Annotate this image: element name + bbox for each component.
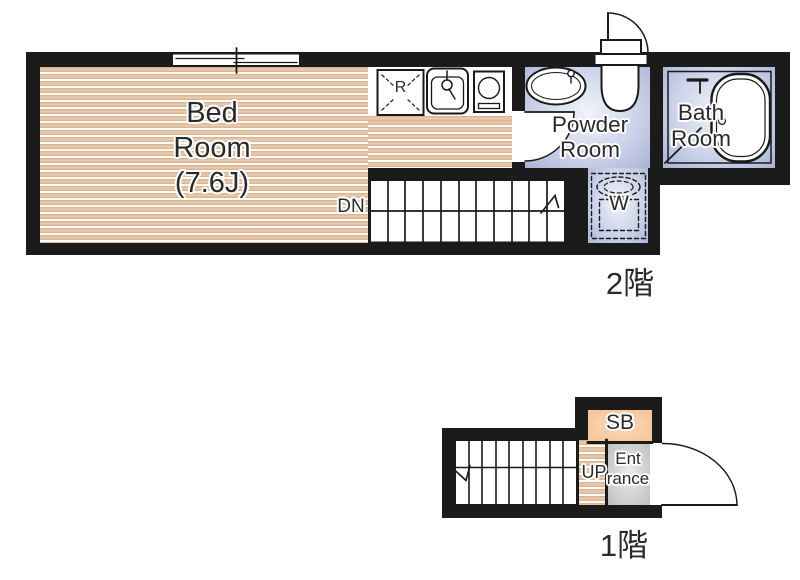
floor1-label: 1階 <box>584 520 664 565</box>
refrigerator-label: R <box>377 79 424 97</box>
bedroom-window-icon <box>172 48 300 73</box>
floor2-label: 2階 <box>592 258 668 303</box>
bedroom-label-line2: Room <box>112 131 312 166</box>
bath-room-label-line1: Bath <box>659 100 743 126</box>
powder-room-label-line2: Room <box>532 137 648 162</box>
entrance-label-line2: rance <box>604 469 652 489</box>
wash-basin-icon <box>527 68 586 105</box>
bath-room-label-line2: Room <box>659 126 743 152</box>
stove-icon <box>474 72 504 113</box>
shoe-box-label: SB <box>588 411 652 435</box>
stairs-1f <box>453 440 577 505</box>
stairs-2f <box>370 180 565 243</box>
powder-room-label: Powder Room <box>532 112 648 162</box>
bedroom-label-line1: Bed <box>112 96 312 131</box>
toilet-icon <box>595 13 649 111</box>
stairs-down-label: DN <box>330 196 372 218</box>
powder-room-label-line1: Powder <box>532 112 648 137</box>
kitchen-sink-icon <box>427 69 468 114</box>
bath-room-label: Bath Room <box>659 100 743 152</box>
floor-plan: Bed Room (7.6J) R DN Powder Room Bath Ro… <box>0 0 800 580</box>
bedroom-label-line3: (7.6J) <box>112 166 312 201</box>
bedroom-label: Bed Room (7.6J) <box>112 96 312 201</box>
washer-label: W <box>599 192 639 216</box>
entrance-door-icon <box>662 443 737 505</box>
entrance-label-line1: Ent <box>604 449 652 469</box>
entrance-label: Ent rance <box>604 449 652 489</box>
